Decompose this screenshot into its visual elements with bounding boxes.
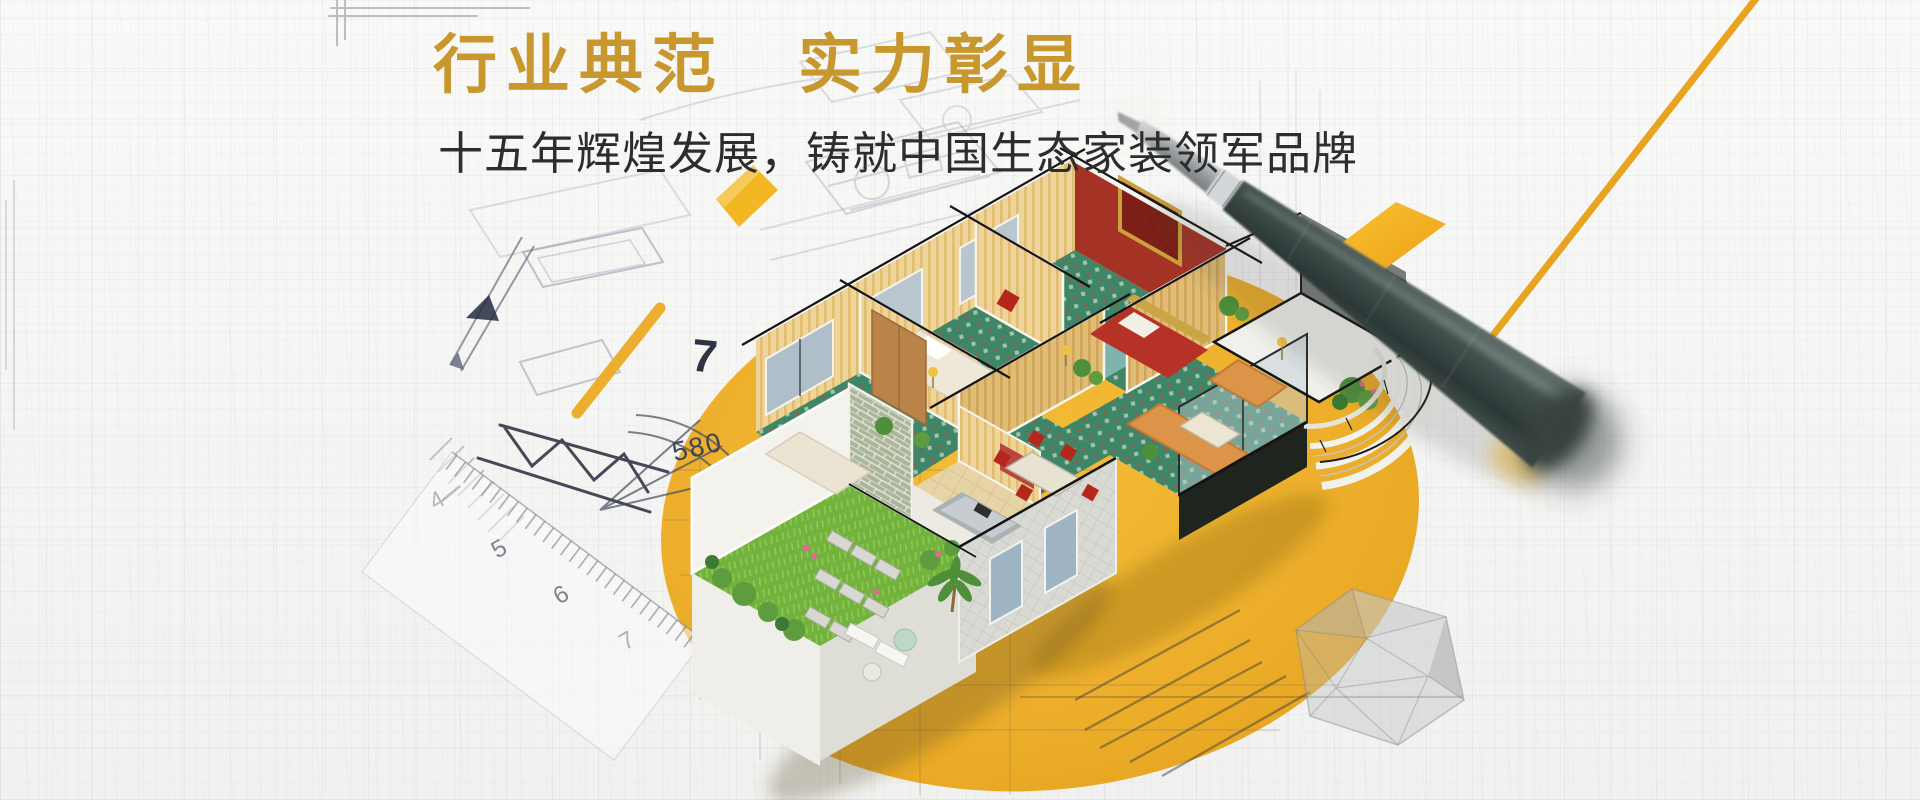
yellow-accent-line xyxy=(577,308,660,413)
banner-subtitle: 十五年辉煌发展，铸就中国生态家装领军品牌 xyxy=(438,128,1358,180)
orange-accent-line xyxy=(1494,0,1758,334)
wireframe-polyhedron-icon xyxy=(1296,589,1464,745)
garden-table xyxy=(863,663,881,681)
banner-title: 行业典范 实力彰显 xyxy=(433,30,1090,100)
banner-artwork: 7 580 4 5 6 7 xyxy=(0,0,1920,800)
garden-pond xyxy=(894,629,916,651)
sketch-number: 7 xyxy=(689,329,720,383)
hero-banner: 7 580 4 5 6 7 xyxy=(0,0,1920,800)
sketched-pencil xyxy=(450,237,534,371)
